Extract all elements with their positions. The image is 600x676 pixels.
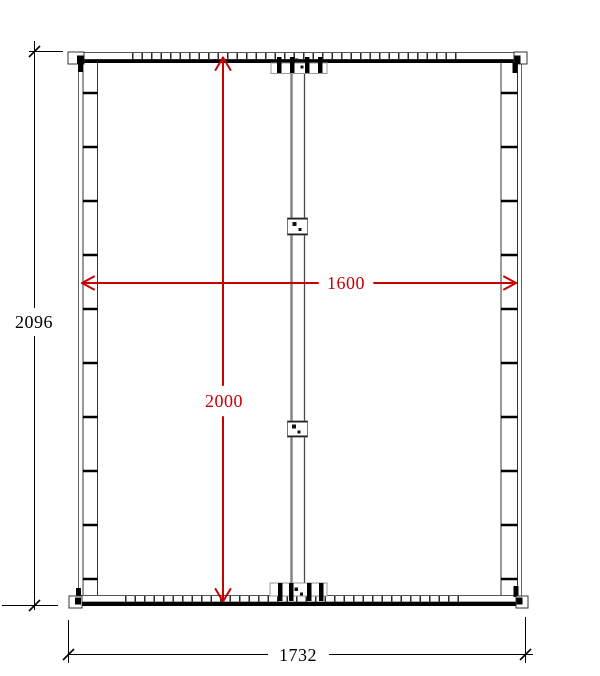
head-strip (84, 53, 516, 60)
bracket-bar (290, 57, 295, 73)
left-jamb-band (83, 63, 98, 597)
bracket-bar (277, 57, 282, 73)
corner-bracket-bottom-right (514, 586, 529, 608)
dim-opening-width: 1600 (82, 273, 516, 293)
right-jamb-band (501, 63, 518, 597)
sill-thick-line (81, 602, 517, 606)
bracket-bar (307, 583, 312, 601)
head-member (84, 53, 516, 64)
dim-overall-height: 2096 (2, 41, 63, 611)
mullion-connector-upper (288, 218, 308, 235)
corner-bracket-bottom-left (69, 588, 82, 608)
screw-dot (300, 593, 303, 596)
overall-height-label: 2096 (15, 312, 53, 332)
center-mullion (292, 73, 305, 583)
bracket-bar (289, 583, 294, 601)
overall-width-label: 1732 (279, 645, 317, 665)
corner-bar (78, 62, 83, 72)
screw-dot (292, 425, 296, 429)
sill-member (81, 596, 517, 607)
connector-plate (288, 218, 308, 235)
dim-opening-height: 2000 (205, 58, 243, 602)
frame-drawing: 2096 1732 1600 2000 (0, 0, 600, 676)
head-thick-line (84, 60, 516, 64)
corner-bracket-top-left (68, 52, 84, 72)
dim-overall-width: 1732 (63, 617, 533, 665)
screw-dot (299, 228, 302, 231)
corner-bracket-top-right (513, 52, 528, 73)
corner-bar (75, 598, 81, 605)
corner-bar (513, 62, 518, 73)
mullion-connector-lower (288, 421, 308, 437)
left-jamb (79, 62, 98, 597)
corner-bar (517, 598, 523, 605)
bracket-bar (318, 57, 323, 73)
bracket-bar (319, 583, 324, 601)
technical-drawing-canvas: 2096 1732 1600 2000 (0, 0, 600, 676)
corner-bar (514, 586, 519, 597)
connector-plate (288, 421, 308, 437)
screw-dot (298, 431, 301, 434)
bracket-bar (278, 583, 283, 601)
opening-width-label: 1600 (327, 273, 365, 293)
right-jamb (501, 62, 522, 597)
screw-dot (293, 222, 297, 226)
screw-dot (295, 588, 299, 592)
opening-height-label: 2000 (205, 391, 243, 411)
screw-dot (301, 66, 304, 69)
screw-dot (295, 59, 299, 63)
bracket-bar (305, 57, 310, 73)
